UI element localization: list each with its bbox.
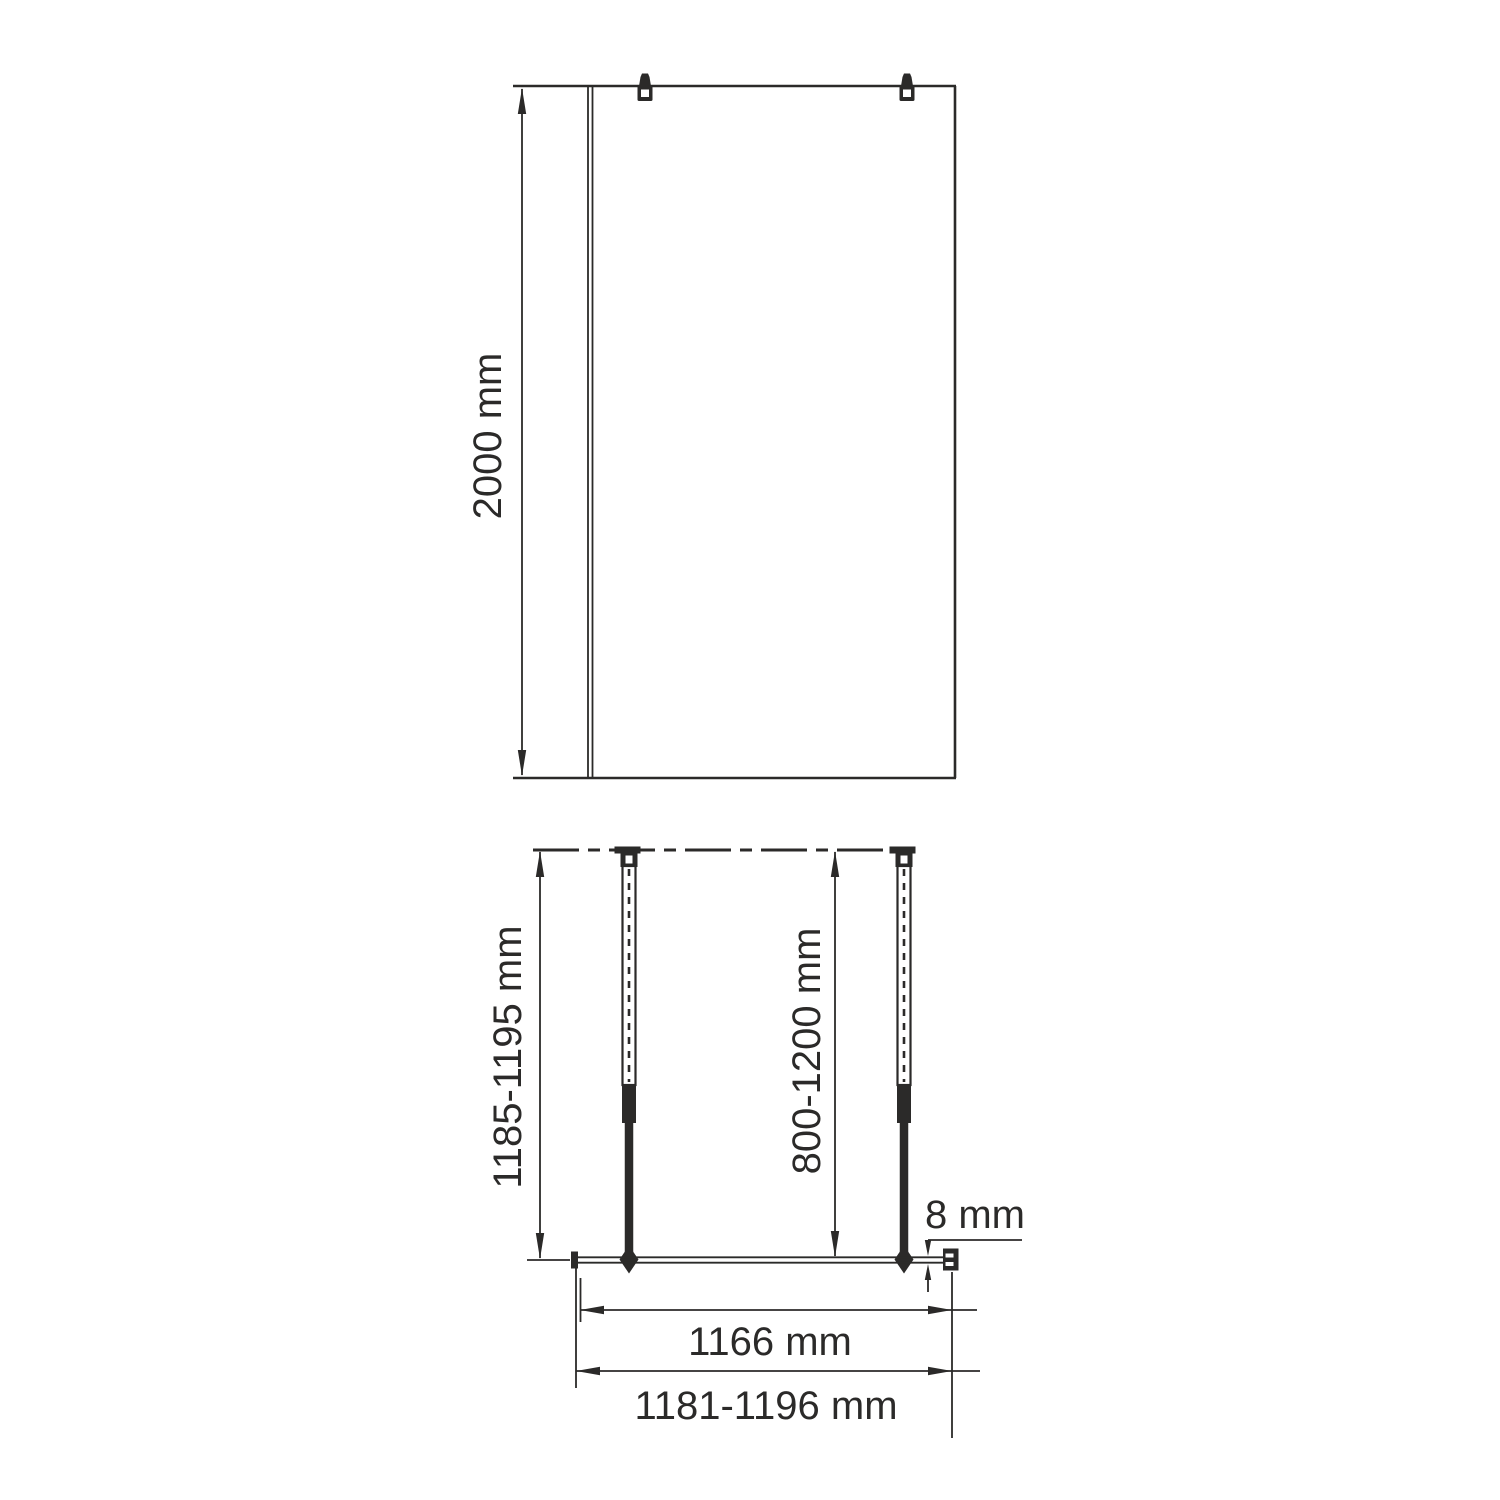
arrowhead-up-icon — [536, 851, 544, 877]
bar-coupler — [622, 1085, 636, 1123]
glass-thickness-label: 8 mm — [925, 1193, 1025, 1237]
arrowhead-left-icon — [580, 1306, 604, 1314]
arrowhead-right-icon — [928, 1367, 952, 1375]
wall-bracket-slot — [626, 856, 633, 864]
wall-profile-icon — [943, 1249, 959, 1271]
arrowhead-left-icon — [576, 1367, 600, 1375]
arrowhead-down-icon — [925, 1240, 931, 1256]
installation-depth-dimension: 1185-1195 mm — [486, 851, 570, 1260]
wall-profile-slot-top — [946, 1254, 954, 1258]
arrowhead-right-icon — [928, 1306, 952, 1314]
height-dimension-label: 2000 mm — [466, 353, 510, 520]
clamp-knob — [901, 74, 913, 87]
arrowhead-down-icon — [831, 1231, 839, 1257]
bar-rod — [900, 1123, 909, 1253]
wall-bracket-slot — [901, 856, 908, 864]
glass-thickness-dimension: 8 mm — [925, 1193, 1025, 1292]
clamp-slot — [903, 90, 911, 98]
bar-glass-connector — [620, 1246, 639, 1274]
glass-end-cap — [571, 1252, 578, 1269]
support-bar-left — [615, 847, 641, 1274]
wall-profile-slot-bottom — [946, 1262, 954, 1266]
height-dimension: 2000 mm — [466, 88, 526, 776]
bar-coupler — [897, 1085, 911, 1123]
overall-width-dimension: 1181-1196 mm — [576, 1367, 980, 1428]
bar-rod — [625, 1123, 634, 1253]
arrowhead-up-icon — [831, 851, 839, 877]
glass-width-label: 1166 mm — [688, 1320, 852, 1364]
support-bar-range-label: 800-1200 mm — [785, 928, 829, 1175]
arrowhead-down-icon — [536, 1233, 544, 1259]
wall-profile-body — [943, 1249, 959, 1271]
shower-screen-technical-drawing: 2000 mm — [0, 0, 1500, 1500]
drawing-canvas: 2000 mm — [0, 0, 1500, 1500]
wall-clamp-left-icon — [638, 74, 653, 102]
arrowhead-down-icon — [518, 750, 526, 776]
support-bar-right — [890, 847, 916, 1274]
wall-clamp-right-icon — [900, 74, 915, 102]
support-bar-dimension: 800-1200 mm — [785, 851, 839, 1257]
installation-depth-label: 1185-1195 mm — [486, 925, 530, 1188]
overall-width-label: 1181-1196 mm — [634, 1384, 897, 1428]
bar-glass-connector — [895, 1246, 914, 1274]
front-elevation-view: 2000 mm — [466, 74, 956, 779]
arrowhead-up-icon — [518, 88, 526, 114]
clamp-slot — [641, 90, 649, 98]
glass-width-dimension: 1166 mm — [580, 1306, 977, 1364]
clamp-knob — [639, 74, 651, 87]
plan-view: 1185-1195 mm 800-1200 mm 8 mm 1166 mm — [486, 847, 1025, 1439]
